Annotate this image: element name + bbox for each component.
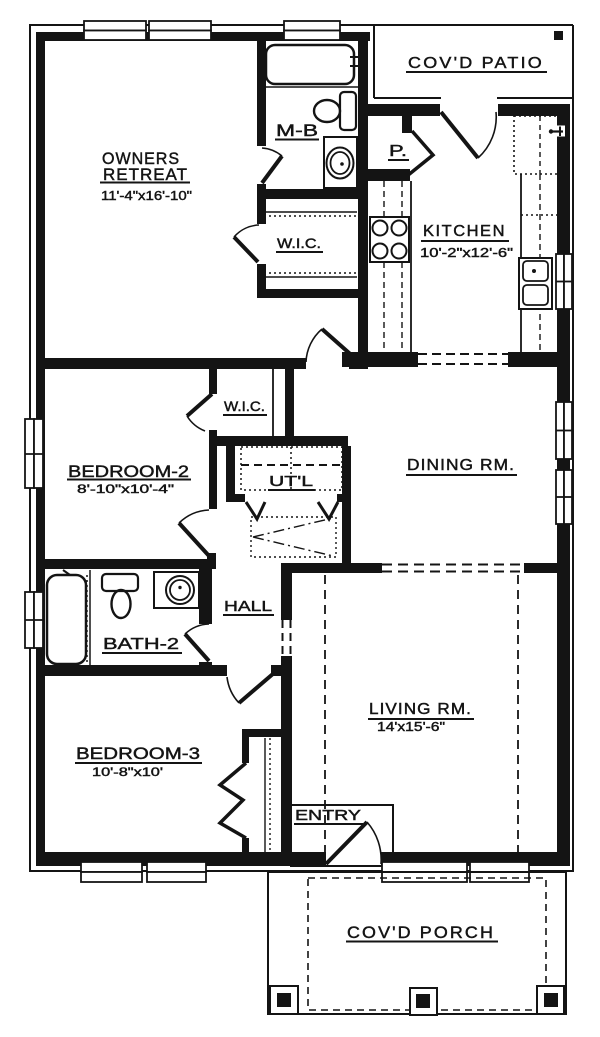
svg-text:14'x15'-6": 14'x15'-6" [377, 719, 445, 734]
svg-text:UT'L: UT'L [269, 473, 313, 490]
svg-text:W.I.C.: W.I.C. [277, 235, 321, 251]
svg-text:ENTRY: ENTRY [295, 807, 361, 824]
svg-text:11'-4"x16'-10": 11'-4"x16'-10" [101, 188, 192, 203]
svg-text:8'-10"x10'-4": 8'-10"x10'-4" [77, 482, 174, 496]
svg-text:DINING RM.: DINING RM. [407, 457, 515, 474]
svg-text:10'-2"x12'-6": 10'-2"x12'-6" [420, 245, 513, 260]
svg-text:BATH-2: BATH-2 [103, 636, 179, 653]
svg-text:HALL: HALL [224, 598, 272, 615]
svg-text:LIVING RM.: LIVING RM. [369, 701, 472, 718]
svg-text:BEDROOM-3: BEDROOM-3 [76, 744, 200, 763]
svg-text:M-B: M-B [276, 121, 318, 140]
svg-text:BEDROOM-2: BEDROOM-2 [68, 462, 189, 481]
svg-text:P.: P. [389, 143, 407, 160]
svg-text:KITCHEN: KITCHEN [423, 223, 506, 240]
svg-text:RETREAT: RETREAT [103, 165, 188, 184]
svg-text:W.I.C.: W.I.C. [224, 398, 265, 414]
svg-text:COV'D PORCH: COV'D PORCH [347, 923, 495, 942]
svg-text:COV'D PATIO: COV'D PATIO [408, 55, 544, 72]
svg-text:10'-8"x10': 10'-8"x10' [92, 765, 163, 779]
